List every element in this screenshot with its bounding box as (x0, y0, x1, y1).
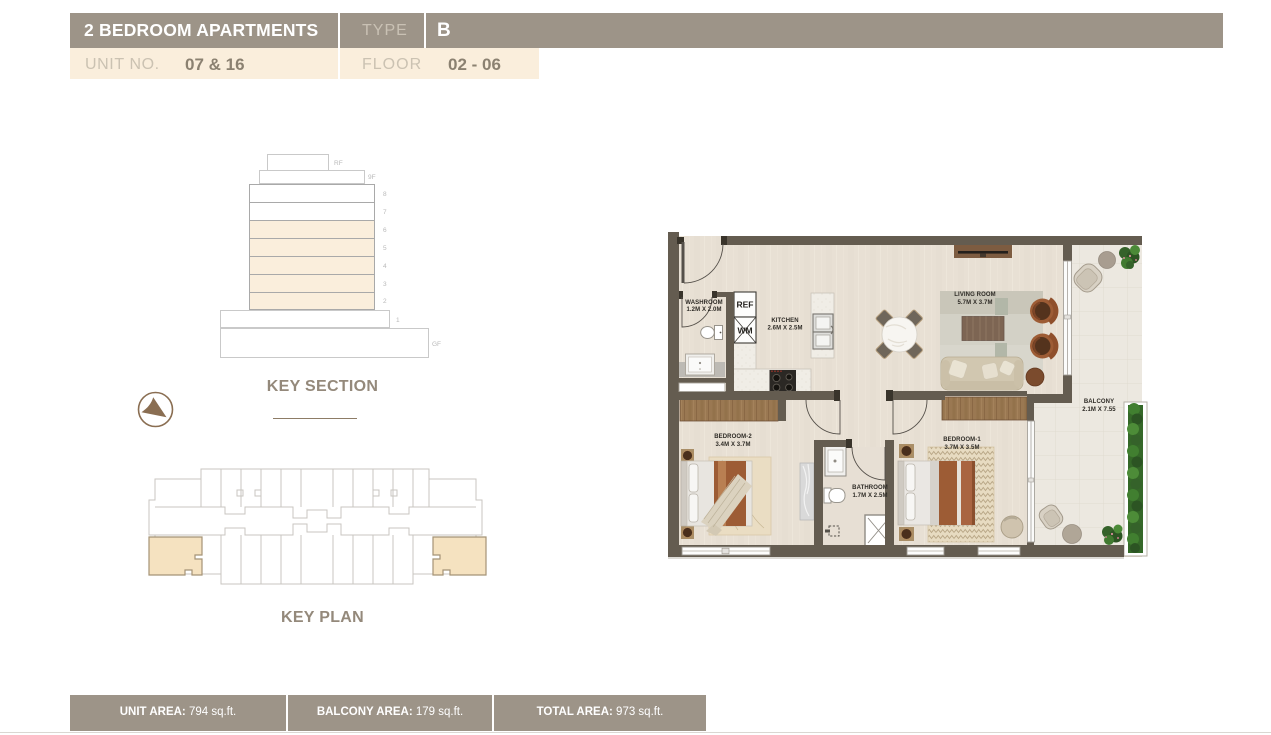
svg-text:3: 3 (383, 281, 387, 288)
svg-text:BATHROOM: BATHROOM (852, 485, 888, 491)
svg-text:1: 1 (396, 317, 400, 324)
svg-text:2.6M X 2.5M: 2.6M X 2.5M (767, 326, 802, 332)
svg-text:4: 4 (383, 263, 387, 270)
svg-text:REF: REF (737, 300, 754, 310)
svg-text:BEDROOM-2: BEDROOM-2 (714, 434, 752, 440)
svg-text:3.7M X 3.5M: 3.7M X 3.5M (944, 445, 979, 451)
svg-text:2.1M X 7.55: 2.1M X 7.55 (1082, 407, 1116, 413)
svg-text:WM: WM (737, 326, 752, 336)
svg-text:8: 8 (383, 191, 387, 198)
svg-text:BALCONY: BALCONY (1084, 399, 1114, 405)
svg-text:2: 2 (383, 298, 387, 305)
svg-text:3.4M X 3.7M: 3.4M X 3.7M (715, 442, 750, 448)
svg-text:KITCHEN: KITCHEN (771, 318, 798, 324)
svg-text:5: 5 (383, 245, 387, 252)
svg-text:7: 7 (383, 209, 387, 216)
svg-text:1.7M X 2.5M: 1.7M X 2.5M (852, 493, 887, 499)
svg-text:6: 6 (383, 227, 387, 234)
svg-text:GF: GF (432, 341, 441, 348)
svg-text:LIVING ROOM: LIVING ROOM (954, 292, 995, 298)
svg-text:1.2M X 2.0M: 1.2M X 2.0M (686, 307, 721, 313)
svg-text:RF: RF (334, 160, 343, 167)
svg-text:5.7M X 3.7M: 5.7M X 3.7M (957, 300, 992, 306)
svg-text:WASHROOM: WASHROOM (685, 300, 722, 306)
svg-text:9F: 9F (368, 174, 376, 181)
svg-text:BEDROOM-1: BEDROOM-1 (943, 437, 981, 443)
